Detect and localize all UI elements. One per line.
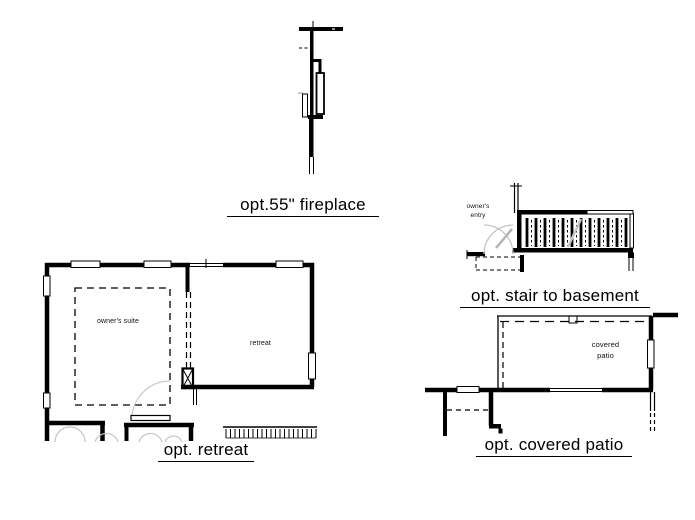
stair-caption: opt. stair to basement — [460, 286, 650, 308]
window — [276, 261, 303, 268]
fixture-arc — [95, 433, 118, 442]
door-leaf — [496, 229, 512, 248]
stair-top-wall — [517, 210, 587, 215]
owners-suite-label: owner's suite — [78, 317, 158, 327]
fireplace-drawing — [298, 21, 343, 174]
fireplace-box — [317, 73, 325, 114]
retreat-room-label: retreat — [238, 339, 283, 349]
covered-patio-label: covered patio — [578, 340, 633, 362]
retreat-caption: opt. retreat — [158, 440, 254, 462]
patio-drawing — [425, 315, 678, 436]
deck-hatch — [226, 429, 316, 438]
fireplace-upper-wall — [310, 31, 314, 121]
stoop-dashed — [476, 257, 522, 270]
fireplace-lower-wall — [309, 119, 314, 157]
fireplace-caption: opt.55" fireplace — [227, 195, 379, 217]
window — [457, 387, 479, 393]
window — [309, 353, 316, 379]
stair-drawing — [467, 183, 634, 272]
door-leaf — [131, 416, 170, 421]
drawing-sheet: owner's entry owner's suite retreat cove… — [0, 0, 695, 520]
fixture-arc — [55, 427, 85, 442]
fireplace-side-panel — [303, 94, 308, 117]
window — [648, 340, 655, 368]
window — [44, 393, 51, 408]
patio-caption: opt. covered patio — [476, 435, 632, 457]
door-swing-arc — [132, 381, 170, 419]
ceiling-dashed-line — [75, 288, 170, 405]
fireplace-top-wall — [299, 27, 343, 31]
retreat-drawing — [44, 259, 318, 442]
stair-top-rail — [587, 211, 633, 215]
fireplace-dot — [332, 28, 335, 30]
window — [144, 261, 171, 268]
window — [44, 276, 51, 296]
stair-break-line — [568, 219, 581, 247]
owners-entry-label: owner's entry — [452, 202, 504, 221]
window — [71, 261, 100, 268]
stair-bottom-wall — [512, 248, 633, 253]
interior-wall-stub — [186, 267, 190, 292]
